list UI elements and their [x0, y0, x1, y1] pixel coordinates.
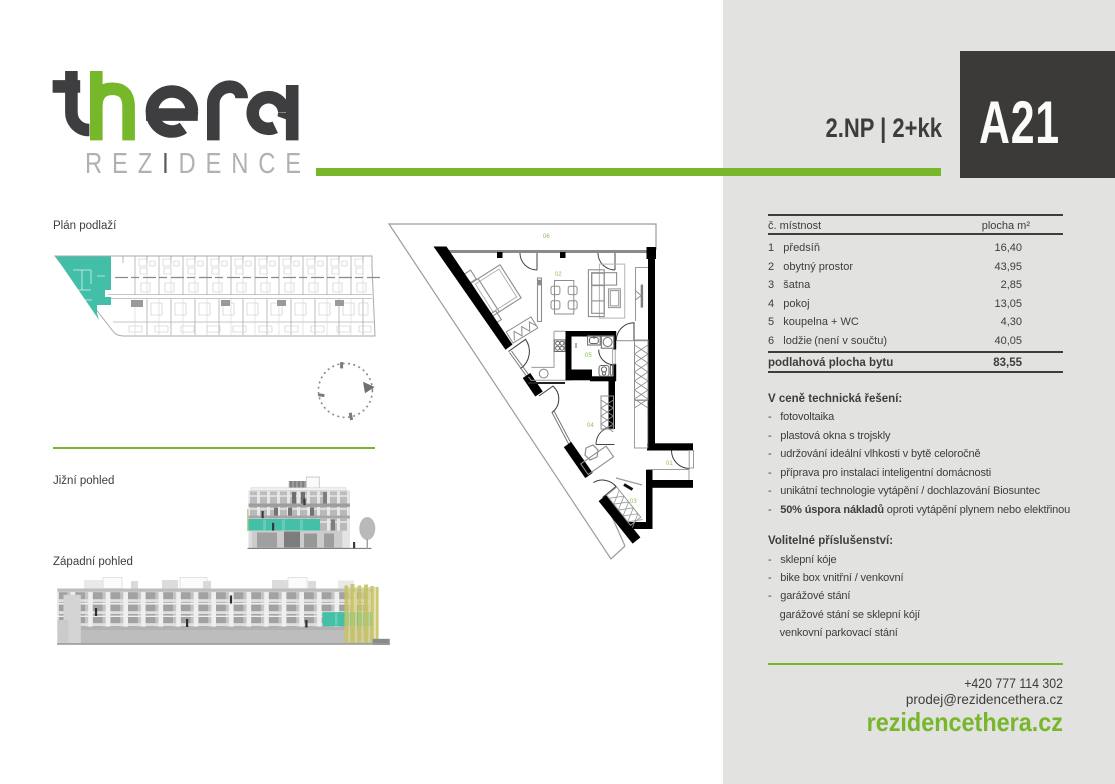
svg-text:01: 01: [666, 461, 673, 467]
svg-text:04: 04: [587, 423, 594, 429]
svg-text:02: 02: [555, 272, 562, 278]
svg-text:03: 03: [630, 499, 637, 505]
svg-text:05: 05: [585, 353, 592, 359]
svg-text:06: 06: [543, 234, 550, 240]
